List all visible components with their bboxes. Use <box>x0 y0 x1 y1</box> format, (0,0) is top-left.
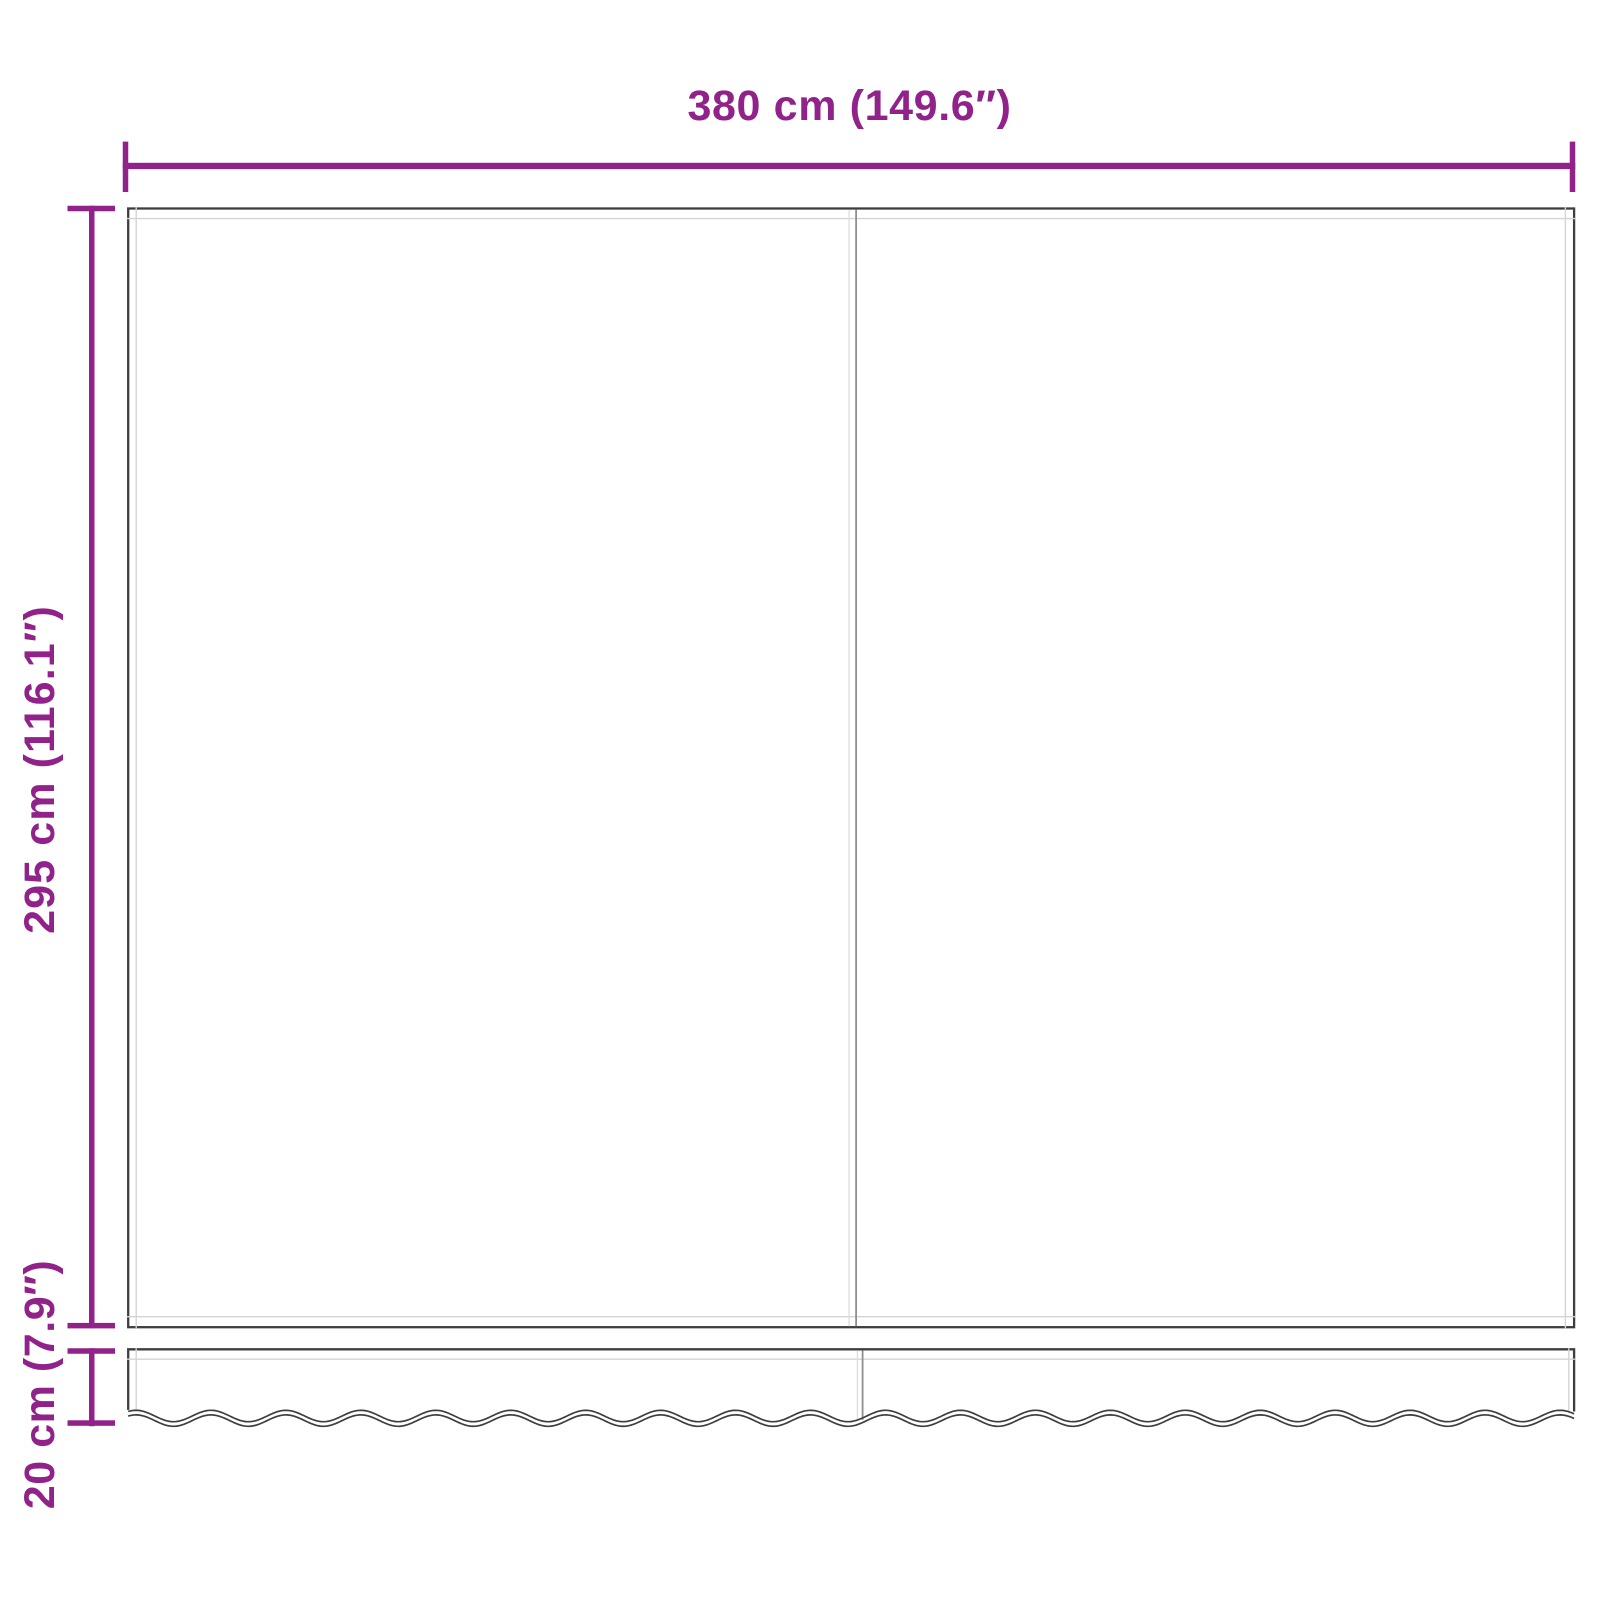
svg-text:380 cm (149.6″): 380 cm (149.6″) <box>687 82 1011 130</box>
svg-text:20 cm (7.9″): 20 cm (7.9″) <box>16 1260 64 1509</box>
svg-text:295 cm (116.1″): 295 cm (116.1″) <box>16 605 64 934</box>
